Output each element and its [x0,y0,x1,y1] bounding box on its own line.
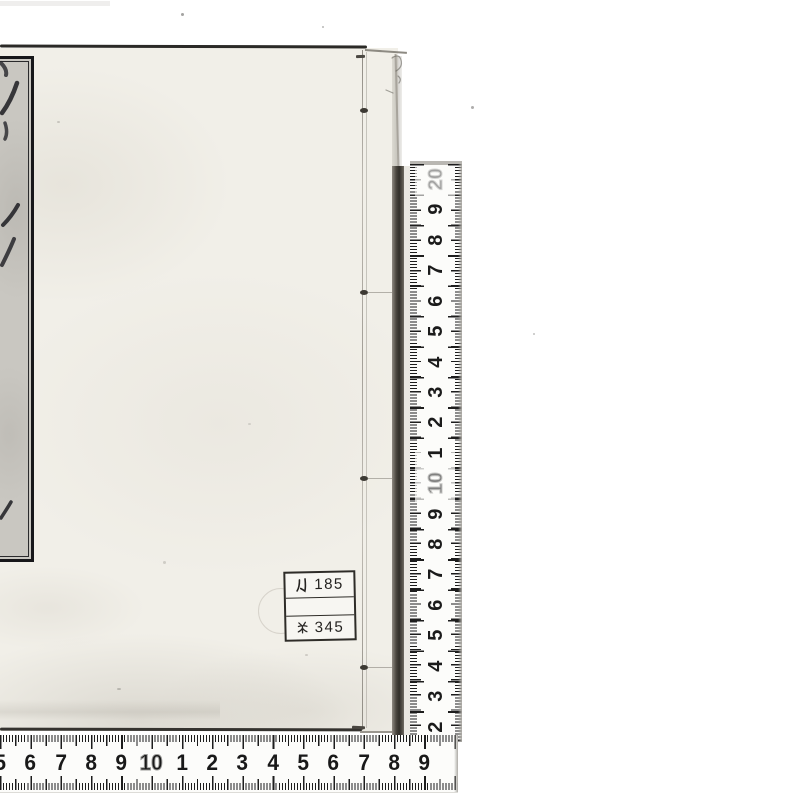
dust-speck [163,561,166,564]
call-label-row-1: 185 [285,572,353,598]
ruler-number: 10 [137,747,166,779]
ruler-number: 9 [107,747,136,779]
horizontal-ruler: 5678910123456789 [0,735,458,793]
corner-stitch-mark [356,55,365,58]
dust-speck [305,654,308,656]
ruler-number: 8 [77,747,106,779]
call-label-row-2 [286,597,354,616]
ruler-number: 6 [319,747,348,779]
ruler-edge [454,735,458,792]
title-calligraphy-strokes [0,59,31,559]
horizontal-ruler-mm-ticks [0,735,458,742]
horizontal-ruler-mm-ticks [0,783,458,790]
ruler-number: 3 [228,747,257,779]
ruler-number: 2 [198,747,227,779]
ruler-number: 6 [16,747,45,779]
ruler-number: 1 [168,747,197,779]
ruler-number: 7 [349,747,378,779]
title-slip [0,56,34,562]
ruler-number: 5 [0,747,15,779]
horizontal-ruler-numbers: 5678910123456789 [0,747,439,779]
dust-speck [533,333,535,335]
scan-streak [0,1,110,6]
katakana-ru-glyph [295,577,308,593]
call-label-row-3: 345 [286,615,354,640]
corner-pencil-scribble [376,52,412,104]
binding-fold-line [362,50,363,730]
ruler-number: 2 [421,701,451,753]
call-number-label: 185 345 [283,570,356,641]
ruler-number: 5 [289,747,318,779]
bottom-smudge [0,700,220,720]
vertical-ruler-numbers: 209876543211098765432 [410,164,462,742]
dust-speck [322,26,324,28]
dust-speck [471,106,474,109]
binding-fold-line-2 [366,52,367,728]
call-number-345: 345 [315,618,345,636]
dai-glyph [297,621,309,634]
vertical-ruler: 209876543211098765432 [410,164,462,742]
dust-speck [117,688,121,690]
dust-speck [181,13,184,16]
call-number-185: 185 [314,576,344,594]
ruler-number: 4 [258,747,287,779]
dust-speck [248,423,251,425]
ruler-number: 7 [46,747,75,779]
dust-speck [57,121,60,123]
scanned-book-cover-page: 185 345 2098765 [0,0,800,800]
stitch-hole [360,108,368,113]
ruler-number: 8 [380,747,409,779]
corner-stitch-mark [352,726,365,729]
page-edge-shadow [392,166,404,738]
ruler-number: 9 [410,747,439,779]
